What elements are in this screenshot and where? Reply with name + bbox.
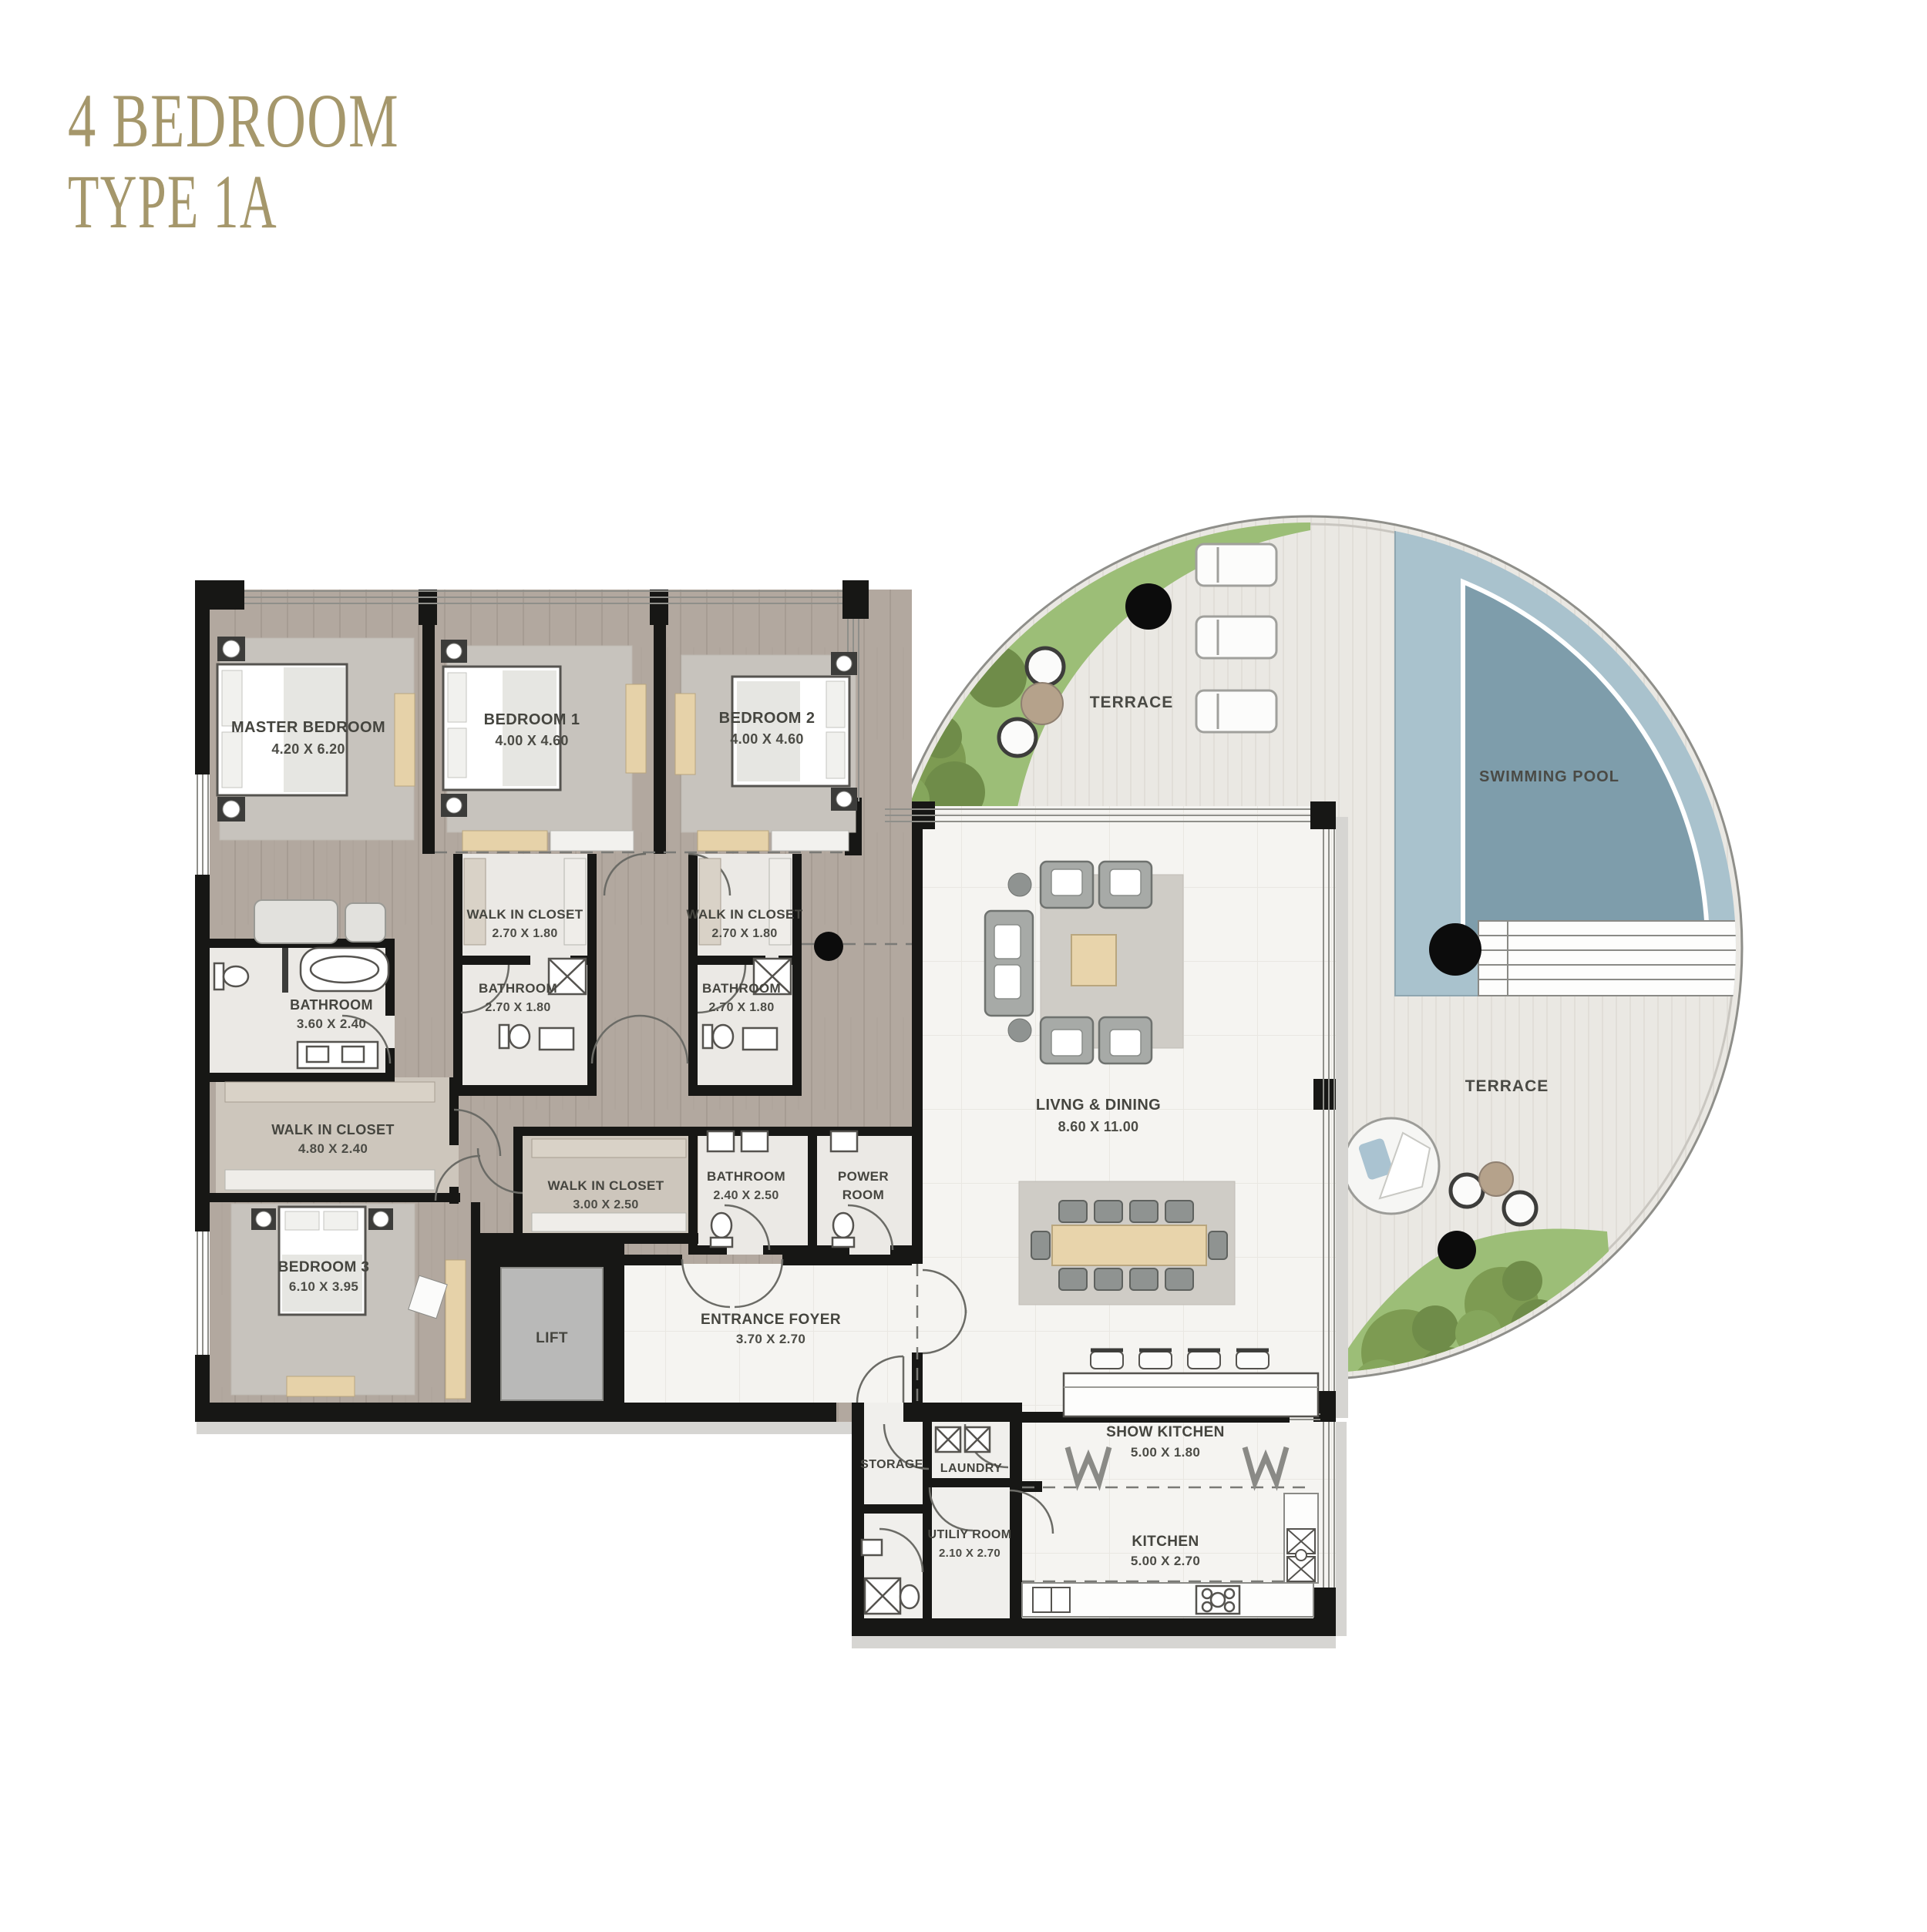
terrace-label-lower: TERRACE [1465,1077,1549,1095]
bedroom2-furniture [675,652,857,851]
label-bedroom2: BEDROOM 2 [719,710,816,727]
sun-loungers [1196,544,1276,732]
label-bathroom1: BATHROOM [479,981,557,996]
dims-bathroom2: 2.70 X 1.80 [708,1001,774,1014]
pool-column [1429,923,1481,976]
floor-plan-canvas: 4 BEDROOM TYPE 1A [0,0,1927,1932]
label-lift: LIFT [536,1330,568,1346]
label-master-bedroom: MASTER BEDROOM [231,719,385,736]
dims-master-closet: 4.80 X 2.40 [298,1141,368,1156]
terrace-label-upper: TERRACE [1090,694,1174,711]
dining-table [1052,1225,1206,1265]
garden-column [1438,1231,1476,1269]
floor-plan-page: 4 BEDROOM TYPE 1A [0,0,1927,1932]
label-show-kitchen: SHOW KITCHEN [1106,1424,1225,1440]
label-bedroom1: BEDROOM 1 [484,711,580,728]
title-line-2: TYPE 1A [68,159,277,244]
label-closet3: WALK IN CLOSET [547,1178,664,1193]
dims-closet3: 3.00 X 2.50 [573,1198,638,1211]
label-bedroom3: BEDROOM 3 [278,1259,370,1275]
swimming-pool-label: SWIMMING POOL [1479,768,1619,785]
dims-bedroom2: 4.00 X 4.60 [730,731,803,747]
dims-closet1: 2.70 X 1.80 [492,927,557,940]
wardrobe [395,694,415,786]
label-bathroom2: BATHROOM [702,981,781,996]
terrace-daybed [1344,1118,1439,1214]
label-utility: UTILIY ROOM [928,1528,1012,1541]
pool-steps [1478,921,1742,996]
dims-living-dining: 8.60 X 11.00 [1058,1119,1139,1134]
dims-bathroom1: 2.70 X 1.80 [485,1001,550,1014]
label-master-closet: WALK IN CLOSET [271,1122,395,1137]
label-power-room-2: ROOM [842,1188,884,1202]
dims-bedroom3: 6.10 X 3.95 [289,1279,358,1294]
living-furniture [985,862,1183,1063]
label-closet2: WALK IN CLOSET [686,907,802,922]
dims-foyer: 3.70 X 2.70 [736,1332,805,1346]
title-line-1: 4 BEDROOM [68,78,399,163]
dims-bathroom3: 2.40 X 2.50 [713,1189,779,1202]
label-power-room-1: POWER [838,1169,889,1184]
label-living-dining: LIVNG & DINING [1036,1097,1161,1114]
label-kitchen: KITCHEN [1132,1534,1199,1550]
dining-furniture [1019,1181,1235,1305]
master-sofa [254,900,385,943]
label-storage: STORAGE [860,1458,923,1471]
cooktop [1196,1586,1239,1614]
dims-closet2: 2.70 X 1.80 [711,927,777,940]
dims-bedroom1: 4.00 X 4.60 [495,733,568,748]
label-master-bathroom: BATHROOM [290,997,373,1013]
label-foyer: ENTRANCE FOYER [701,1312,841,1328]
label-closet1: WALK IN CLOSET [466,907,583,922]
dims-master-bedroom: 4.20 X 6.20 [271,741,345,757]
coffee-table [1071,935,1116,986]
label-bathroom3: BATHROOM [707,1169,785,1184]
dims-master-bathroom: 3.60 X 2.40 [297,1016,366,1031]
label-laundry: LAUNDRY [940,1462,1002,1475]
dims-utility: 2.10 X 2.70 [939,1547,1000,1560]
terrace-column [1125,583,1172,630]
dims-kitchen: 5.00 X 2.70 [1131,1554,1200,1568]
hall-column [814,932,843,961]
dims-show-kitchen: 5.00 X 1.80 [1131,1445,1200,1460]
